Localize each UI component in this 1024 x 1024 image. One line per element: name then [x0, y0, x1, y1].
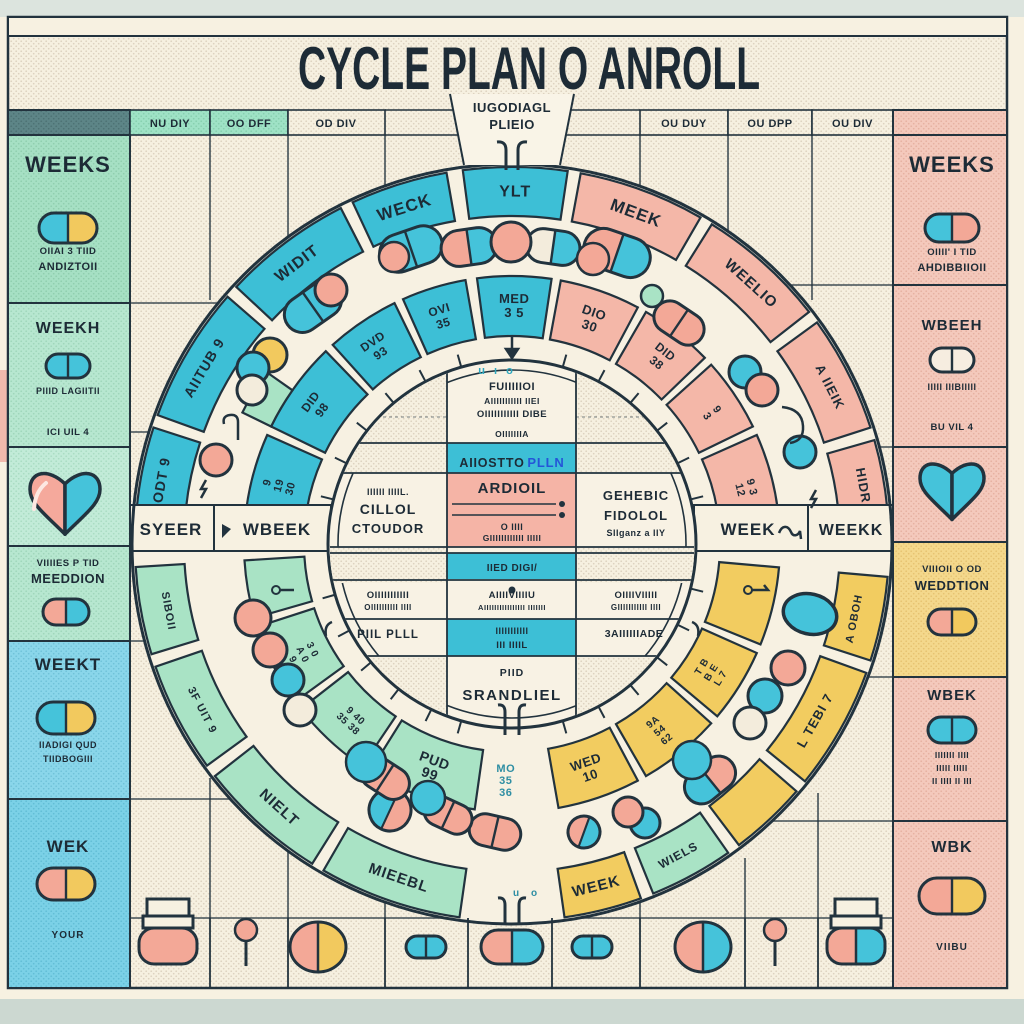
svg-text:WBEEH: WBEEH	[922, 317, 983, 334]
svg-text:WEEKS: WEEKS	[25, 152, 111, 177]
svg-text:WEEKS: WEEKS	[909, 152, 995, 177]
svg-text:OIIIIIIIIIII: OIIIIIIIIIII	[367, 590, 409, 601]
svg-text:VIIIIES P TID: VIIIIES P TID	[37, 558, 100, 569]
svg-text:AIIIIVIIIIU: AIIIIVIIIIU	[489, 590, 536, 601]
svg-text:AHDIBBIIOII: AHDIBBIIOII	[917, 262, 986, 274]
svg-text:OIIIIVIIIII: OIIIIVIIIII	[615, 590, 658, 601]
svg-text:VIIIOII O OD: VIIIOII O OD	[922, 564, 982, 575]
svg-text:YLT: YLT	[499, 183, 531, 200]
svg-text:IIIII IIIBIIIII: IIIII IIIBIIIII	[927, 382, 976, 392]
svg-text:IIIIIII IIII: IIIIIII IIII	[935, 750, 969, 760]
svg-text:PLIElO: PLIElO	[489, 117, 535, 132]
svg-text:ANDIZTOII: ANDIZTOII	[38, 261, 97, 273]
svg-text:YOUR: YOUR	[52, 930, 85, 941]
svg-text:OD DIV: OD DIV	[316, 118, 357, 130]
svg-text:OIIII' I TID: OIIII' I TID	[927, 247, 976, 258]
svg-text:PLLN: PLLN	[527, 455, 564, 470]
svg-text:GIIIIIIIIIIII IIIII: GIIIIIIIIIIII IIIII	[483, 533, 542, 543]
svg-text:II IIII II III: II IIII II III	[932, 776, 972, 786]
svg-text:PIIID LAGIITII: PIIID LAGIITII	[36, 386, 100, 396]
svg-text:AIIIIIIIIIII IIEI: AIIIIIIIIIII IIEI	[484, 396, 540, 406]
svg-text:IIIII IIIII: IIIII IIIII	[936, 763, 967, 773]
svg-text:CILLOL: CILLOL	[360, 501, 417, 517]
svg-text:WEEKK: WEEKK	[819, 522, 884, 539]
svg-text:PIID: PIID	[500, 667, 524, 679]
svg-text:TIIDBOGIII: TIIDBOGIII	[43, 754, 93, 764]
svg-text:NU DIY: NU DIY	[150, 118, 190, 130]
svg-text:GIIIIIIIIIII IIII: GIIIIIIIIIII IIII	[611, 603, 661, 612]
svg-text:WBEEK: WBEEK	[243, 520, 311, 539]
svg-text:WEEK: WEEK	[721, 520, 776, 539]
svg-text:MEEDDION: MEEDDION	[31, 571, 105, 586]
svg-text:MED: MED	[499, 291, 530, 306]
svg-text:III IIIIL: III IIIIL	[496, 640, 527, 651]
svg-text:ARDIOIL: ARDIOIL	[478, 480, 547, 497]
svg-text:CYCLE PLAN O ANROLL: CYCLE PLAN O ANROLL	[298, 35, 760, 102]
svg-text:IIED DIGI/: IIED DIGI/	[487, 563, 538, 574]
svg-text:SRANDLIEL: SRANDLIEL	[462, 687, 561, 704]
svg-text:WEEKH: WEEKH	[36, 320, 101, 337]
svg-text:VIIBU: VIIBU	[936, 942, 968, 953]
svg-text:GEHEBIC: GEHEBIC	[603, 488, 669, 503]
svg-text:3AIIIIIIADE: 3AIIIIIIADE	[605, 628, 664, 640]
svg-text:MO: MO	[496, 763, 515, 775]
svg-text:ICI UIL 4: ICI UIL 4	[47, 427, 90, 438]
svg-text:36: 36	[499, 787, 512, 799]
svg-text:BU VIL 4: BU VIL 4	[931, 422, 974, 433]
svg-text:O IIII: O IIII	[501, 522, 524, 532]
svg-text:AIIIIIIIIIIIIIIII IIIIIII: AIIIIIIIIIIIIIIII IIIIIII	[478, 603, 546, 612]
svg-text:OIIAI 3 TIID: OIIAI 3 TIID	[40, 246, 97, 257]
svg-text:IIIIII IIIIL.: IIIIII IIIIL.	[367, 487, 409, 497]
svg-text:FIDOLOL: FIDOLOL	[604, 508, 668, 523]
svg-text:IIIIIIIIIII: IIIIIIIIIII	[495, 626, 528, 636]
svg-text:OU DUY: OU DUY	[661, 118, 707, 130]
svg-text:OIIIIIIIIII IIII: OIIIIIIIIII IIII	[364, 603, 412, 612]
svg-text:IUGODIAGL: IUGODIAGL	[473, 100, 551, 115]
svg-text:FUIIIIIOI: FUIIIIIOI	[489, 381, 535, 393]
svg-text:3 5: 3 5	[504, 305, 524, 320]
svg-text:WEK: WEK	[47, 837, 90, 856]
svg-text:35: 35	[499, 775, 512, 787]
svg-text:CTOUDOR: CTOUDOR	[352, 521, 424, 536]
svg-text:WEDDTION: WEDDTION	[915, 578, 990, 593]
svg-text:OO DFF: OO DFF	[227, 118, 272, 130]
svg-text:o: o	[531, 888, 538, 899]
svg-text:IIADIGI QUD: IIADIGI QUD	[39, 740, 97, 750]
svg-text:u ı o: u ı o	[478, 365, 516, 377]
svg-text:OU DIV: OU DIV	[832, 118, 873, 130]
svg-text:SIIganz a IIY: SIIganz a IIY	[606, 528, 665, 538]
svg-text:WEEKT: WEEKT	[35, 655, 101, 674]
svg-text:PIIL PLLL: PIIL PLLL	[357, 629, 419, 641]
svg-text:SYEER: SYEER	[140, 520, 203, 539]
svg-text:OIIIIIIIIIII DIBE: OIIIIIIIIIII DIBE	[477, 409, 547, 420]
svg-text:OU DPP: OU DPP	[747, 118, 792, 130]
svg-text:OIIIIIIIA: OIIIIIIIA	[495, 429, 529, 439]
svg-text:u: u	[513, 888, 520, 899]
svg-text:WBEK: WBEK	[927, 687, 977, 704]
svg-text:AIIOSTTO: AIIOSTTO	[459, 456, 524, 470]
svg-text:WBK: WBK	[931, 839, 972, 856]
